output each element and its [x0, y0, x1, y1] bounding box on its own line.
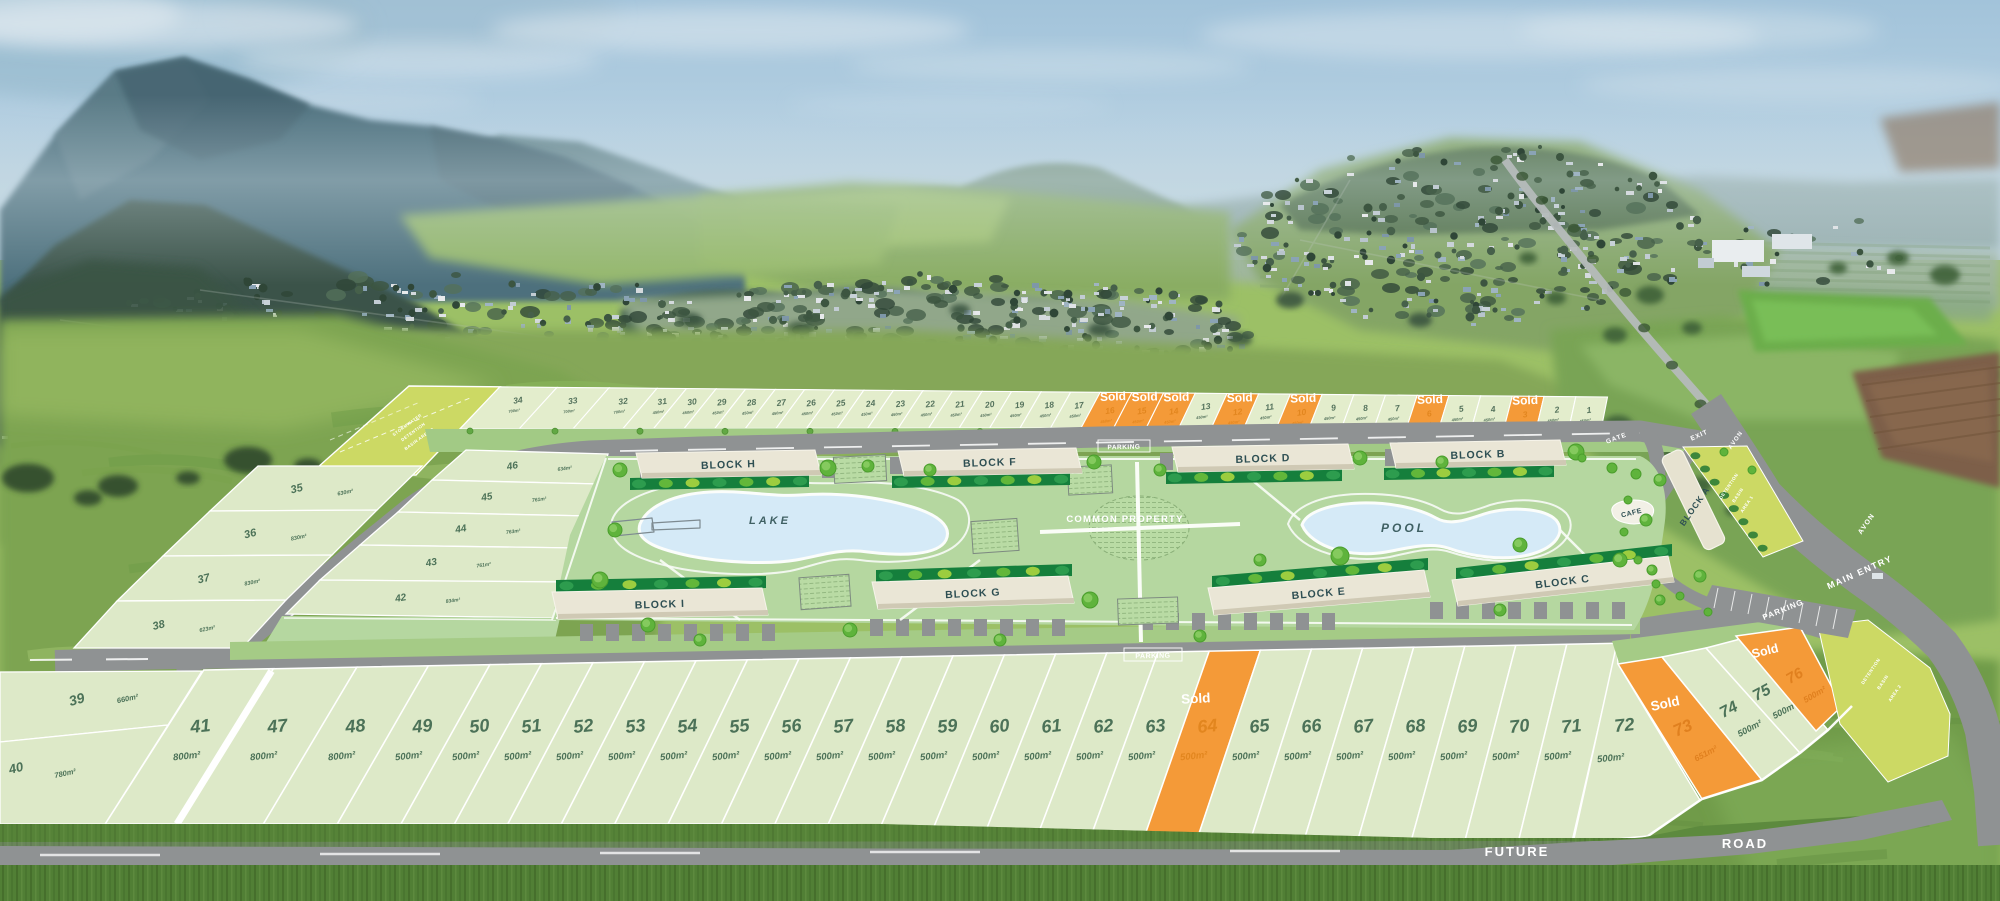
- svg-text:26: 26: [805, 397, 817, 408]
- svg-text:61: 61: [1040, 715, 1062, 737]
- svg-text:Sold: Sold: [1181, 690, 1211, 707]
- svg-text:49: 49: [410, 715, 433, 737]
- svg-text:58: 58: [884, 715, 906, 737]
- svg-text:Sold: Sold: [1417, 392, 1443, 407]
- svg-text:31: 31: [657, 396, 668, 407]
- svg-text:65: 65: [1248, 715, 1271, 737]
- svg-text:19: 19: [1014, 399, 1025, 410]
- svg-text:24: 24: [864, 398, 876, 409]
- svg-text:16: 16: [1104, 405, 1115, 416]
- svg-text:44: 44: [454, 523, 468, 536]
- svg-text:BLOCK F: BLOCK F: [963, 456, 1017, 470]
- svg-text:25: 25: [834, 397, 846, 408]
- svg-text:PARKING: PARKING: [1107, 444, 1140, 452]
- svg-text:POOL: POOL: [1381, 521, 1427, 535]
- svg-text:PARKING: PARKING: [1135, 653, 1170, 661]
- svg-text:69: 69: [1456, 715, 1478, 737]
- svg-text:BLOCK I: BLOCK I: [635, 598, 686, 612]
- svg-text:66: 66: [1300, 715, 1323, 737]
- svg-text:18: 18: [1044, 399, 1055, 410]
- svg-text:15: 15: [1136, 405, 1147, 416]
- svg-text:54: 54: [676, 715, 698, 737]
- svg-text:70: 70: [1508, 715, 1530, 737]
- svg-text:68: 68: [1404, 715, 1426, 737]
- svg-text:Sold: Sold: [1227, 390, 1253, 405]
- svg-text:41: 41: [188, 715, 211, 737]
- svg-text:10: 10: [1296, 407, 1307, 418]
- svg-text:28: 28: [745, 397, 757, 408]
- svg-text:48: 48: [343, 715, 366, 737]
- svg-text:42: 42: [393, 592, 407, 605]
- svg-text:ROAD: ROAD: [1722, 836, 1768, 851]
- svg-text:20: 20: [983, 399, 995, 410]
- svg-text:59: 59: [936, 715, 958, 737]
- svg-text:BLOCK D: BLOCK D: [1235, 452, 1290, 466]
- svg-text:33: 33: [567, 395, 578, 406]
- svg-text:Sold: Sold: [1512, 393, 1538, 408]
- svg-text:BLOCK B: BLOCK B: [1450, 448, 1505, 462]
- svg-text:LAKE: LAKE: [749, 515, 791, 527]
- svg-text:21: 21: [954, 398, 966, 409]
- svg-text:COMMON PROPERTY: COMMON PROPERTY: [1066, 514, 1183, 525]
- svg-text:53: 53: [624, 715, 646, 737]
- svg-text:43: 43: [424, 557, 438, 570]
- svg-text:60: 60: [988, 715, 1010, 737]
- svg-text:12: 12: [1232, 406, 1243, 417]
- svg-text:13: 13: [1200, 401, 1211, 412]
- svg-text:50: 50: [468, 715, 490, 737]
- svg-text:72: 72: [1613, 714, 1635, 736]
- svg-text:Sold: Sold: [1290, 391, 1316, 406]
- svg-text:BLOCK H: BLOCK H: [701, 458, 756, 472]
- svg-text:52: 52: [572, 715, 594, 737]
- svg-text:62: 62: [1092, 715, 1114, 737]
- svg-text:Sold: Sold: [1131, 389, 1157, 404]
- svg-text:55: 55: [728, 715, 751, 737]
- svg-text:22: 22: [924, 398, 936, 409]
- svg-text:56: 56: [780, 715, 803, 737]
- svg-text:11: 11: [1265, 401, 1275, 412]
- svg-text:32: 32: [618, 395, 629, 406]
- svg-text:64: 64: [1196, 715, 1218, 737]
- svg-text:29: 29: [715, 396, 727, 407]
- svg-text:46: 46: [505, 460, 519, 473]
- svg-text:67: 67: [1352, 715, 1375, 737]
- svg-text:51: 51: [520, 715, 542, 737]
- svg-text:14: 14: [1168, 405, 1179, 416]
- svg-text:34: 34: [512, 394, 523, 405]
- svg-text:45: 45: [480, 491, 494, 504]
- svg-text:30: 30: [687, 396, 698, 407]
- svg-text:47: 47: [265, 715, 289, 737]
- svg-text:71: 71: [1560, 715, 1582, 737]
- svg-text:57: 57: [832, 715, 855, 737]
- svg-text:Sold: Sold: [1100, 389, 1126, 404]
- svg-text:Sold: Sold: [1163, 390, 1189, 405]
- svg-text:23: 23: [894, 398, 906, 409]
- svg-text:63: 63: [1144, 715, 1166, 737]
